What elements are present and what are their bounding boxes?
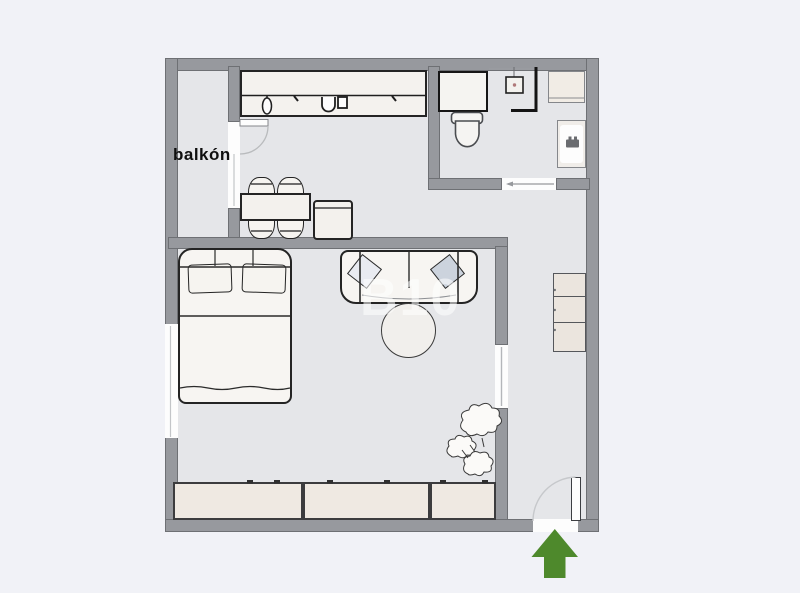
wardrobe-section-1 — [173, 482, 303, 520]
washing-machine — [438, 71, 488, 112]
hall-sliding-door — [495, 345, 508, 408]
bed-pillow-right — [242, 263, 287, 294]
shelf-divider-1 — [554, 296, 585, 297]
wall-balcony-upper — [228, 66, 240, 122]
balcony-label: balkón — [173, 145, 231, 165]
watermark-text: B10 — [360, 268, 461, 328]
bathroom-sliding-door — [502, 178, 556, 190]
shelf-unit — [553, 273, 586, 352]
bathroom-cabinet — [548, 71, 585, 103]
dining-table — [240, 193, 311, 221]
kitchen-counter — [240, 70, 427, 117]
wardrobe-section-2 — [303, 482, 430, 520]
entrance-arrow — [532, 529, 579, 578]
washbasin-bowl — [560, 125, 583, 163]
wall-hall-upper — [495, 246, 508, 345]
entrance-door-leaf — [571, 477, 581, 521]
wardrobe-section-3 — [430, 482, 496, 520]
floorplan-canvas: balkón B10 — [0, 0, 800, 593]
wall-bathroom-bottom-left — [428, 178, 502, 190]
wall-hall-lower — [495, 408, 508, 520]
side-cabinet — [313, 200, 353, 240]
shelf-divider-2 — [554, 322, 585, 323]
wall-right — [586, 58, 599, 532]
left-window — [165, 324, 178, 438]
wall-left — [165, 58, 178, 532]
wall-bathroom-bottom-right — [556, 178, 590, 190]
bed-pillow-left — [188, 263, 233, 294]
